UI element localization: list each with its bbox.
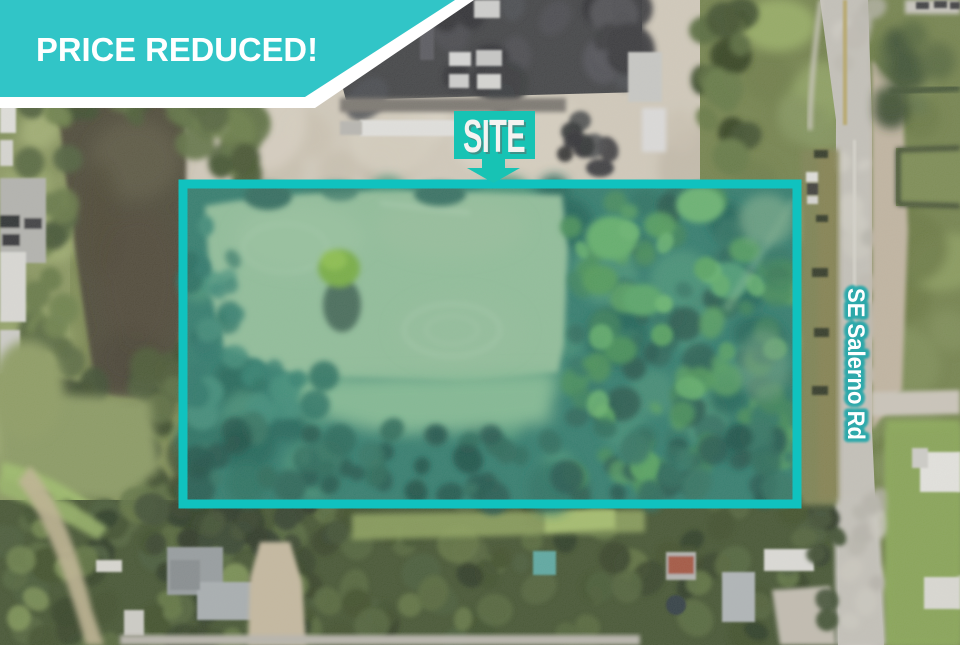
svg-text:SITE: SITE — [463, 110, 525, 162]
svg-text:PRICE REDUCED!: PRICE REDUCED! — [36, 31, 318, 68]
svg-text:SE Salerno Rd: SE Salerno Rd — [842, 288, 869, 440]
